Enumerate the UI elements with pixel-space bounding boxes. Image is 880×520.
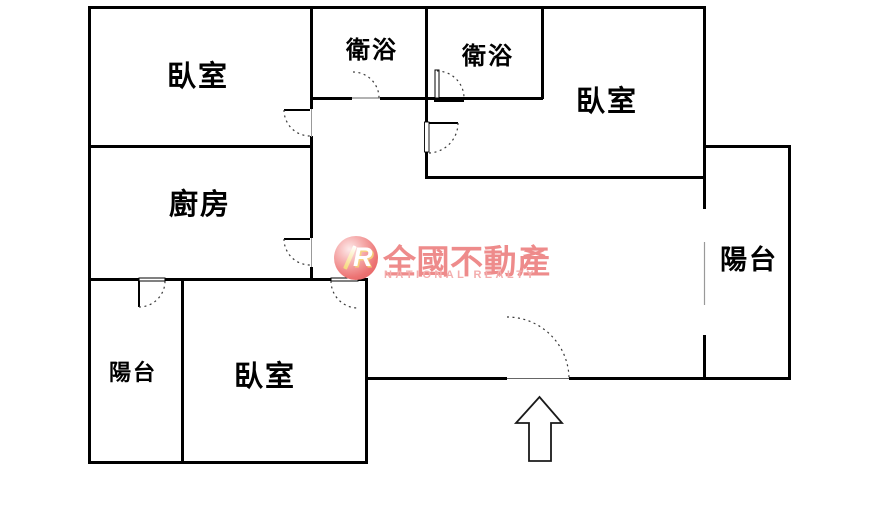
door-arc-kitchen	[284, 239, 310, 265]
logo-name-en: NATIONAL REALTY	[384, 269, 537, 281]
room-label-kitchen: 廚房	[140, 190, 260, 222]
room-label-balcony-right: 陽台	[689, 246, 809, 276]
room-label-bedroom-top-left: 臥室	[138, 62, 258, 94]
door-arc-entrance	[507, 317, 569, 379]
door-swing-arcs	[139, 71, 569, 379]
logo-monogram: R	[353, 242, 373, 273]
door-arc-bedroom2	[428, 123, 458, 153]
door-arc-bedroom1	[284, 110, 310, 136]
room-label-bathroom-left: 衛浴	[312, 38, 432, 64]
room-label-balcony-bottom: 陽台	[73, 361, 193, 385]
floorplan-canvas: 臥室 衛浴 衛浴 臥室 廚房 陽台 陽台 臥室 R 全國不動產 NATIONAL…	[0, 0, 880, 520]
door-arc-bathroom2	[437, 71, 464, 98]
door-arc-bedroom-bottom	[331, 281, 358, 308]
entrance-arrow-icon	[516, 397, 562, 461]
door-arc-bathroom1	[353, 72, 379, 98]
agency-logo: R 全國不動產 NATIONAL REALTY	[333, 235, 563, 285]
bathroom2-door-leaf	[435, 70, 439, 98]
logo-badge-icon: R	[334, 236, 378, 280]
room-label-bedroom-top-right: 臥室	[547, 87, 667, 119]
room-label-bedroom-bottom: 臥室	[205, 362, 325, 394]
room-label-bathroom-right: 衛浴	[428, 44, 548, 70]
door-arc-balcony-bottom	[139, 281, 165, 307]
